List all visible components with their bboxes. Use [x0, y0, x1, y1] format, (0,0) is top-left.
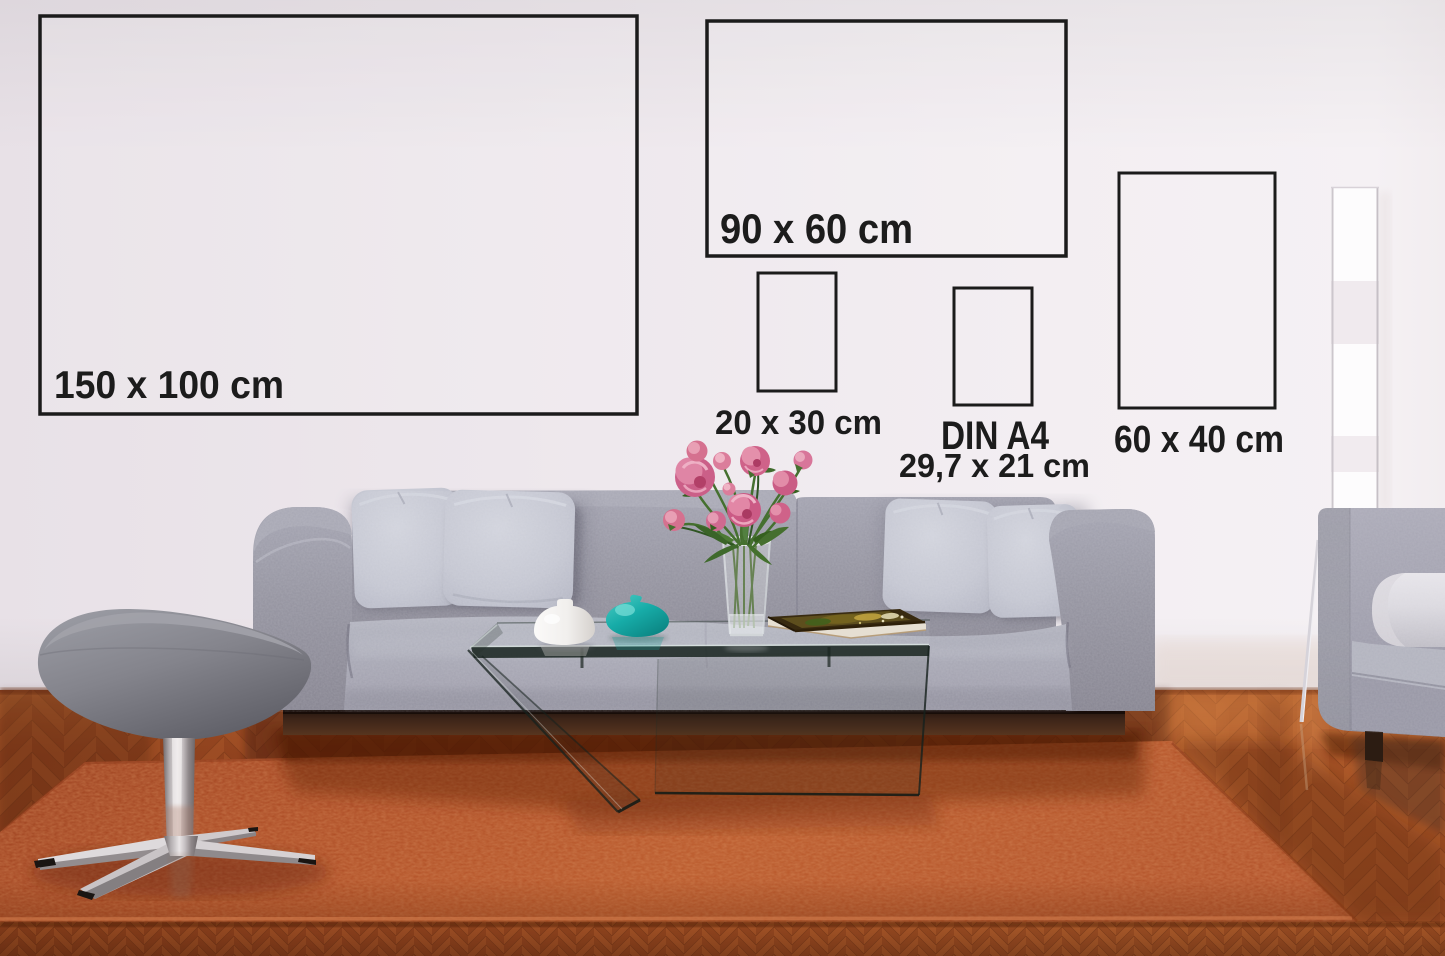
- svg-text:20 x 30 cm: 20 x 30 cm: [715, 404, 882, 442]
- svg-text:150 x 100 cm: 150 x 100 cm: [54, 364, 284, 407]
- svg-text:90 x 60 cm: 90 x 60 cm: [720, 205, 913, 252]
- svg-text:60 x 40 cm: 60 x 40 cm: [1114, 419, 1284, 461]
- svg-text:29,7 x 21 cm: 29,7 x 21 cm: [899, 447, 1090, 484]
